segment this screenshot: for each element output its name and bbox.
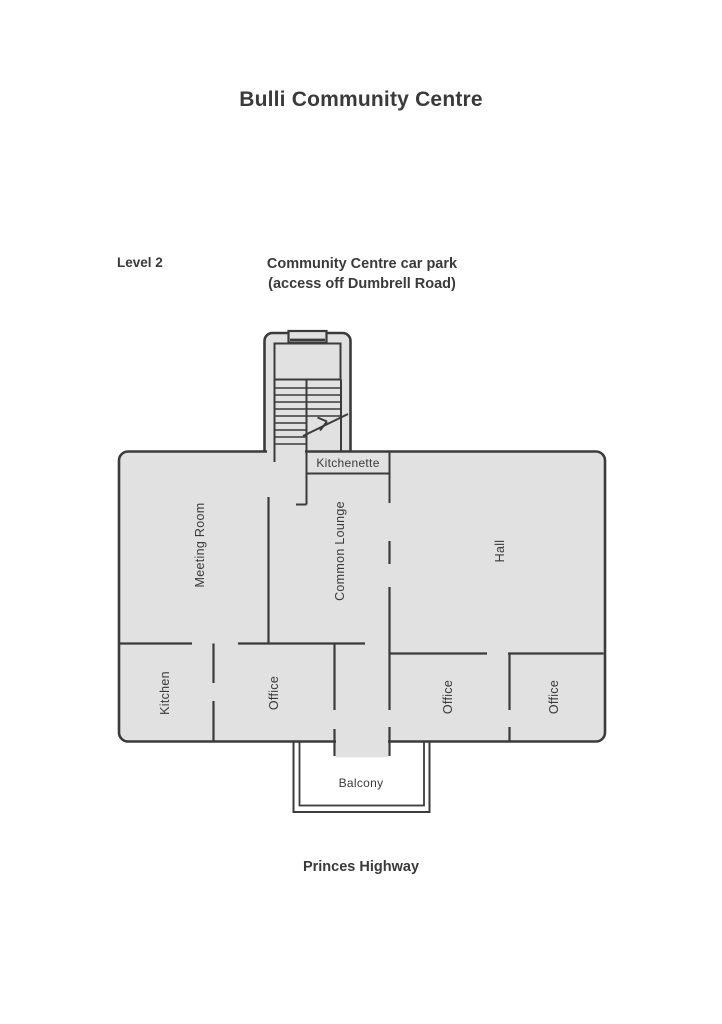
room-label-common-lounge: Common Lounge <box>333 501 347 601</box>
page-title: Bulli Community Centre <box>0 88 722 112</box>
room-label-kitchenette: Kitchenette <box>316 456 379 470</box>
room-label-meeting-room: Meeting Room <box>193 503 207 588</box>
stair-landing <box>275 344 341 380</box>
car-park-note-line1: Community Centre car park <box>182 255 542 275</box>
car-park-note-line2: (access off Dumbrell Road) <box>182 275 542 295</box>
room-label-kitchen: Kitchen <box>158 671 172 715</box>
room-label-hall: Hall <box>493 540 507 563</box>
car-park-note: Community Centre car park (access off Du… <box>182 255 542 294</box>
floor-plan-page: Bulli Community Centre Level 2 Community… <box>0 0 722 1024</box>
building-outline <box>119 448 605 741</box>
room-label-office-3: Office <box>547 680 561 714</box>
balcony-door-opening <box>336 739 388 758</box>
room-label-office-2: Office <box>441 680 455 714</box>
room-label-office-1: Office <box>267 676 281 710</box>
level-label: Level 2 <box>117 255 163 270</box>
road-label: Princes Highway <box>0 859 722 875</box>
room-label-balcony: Balcony <box>339 776 384 790</box>
